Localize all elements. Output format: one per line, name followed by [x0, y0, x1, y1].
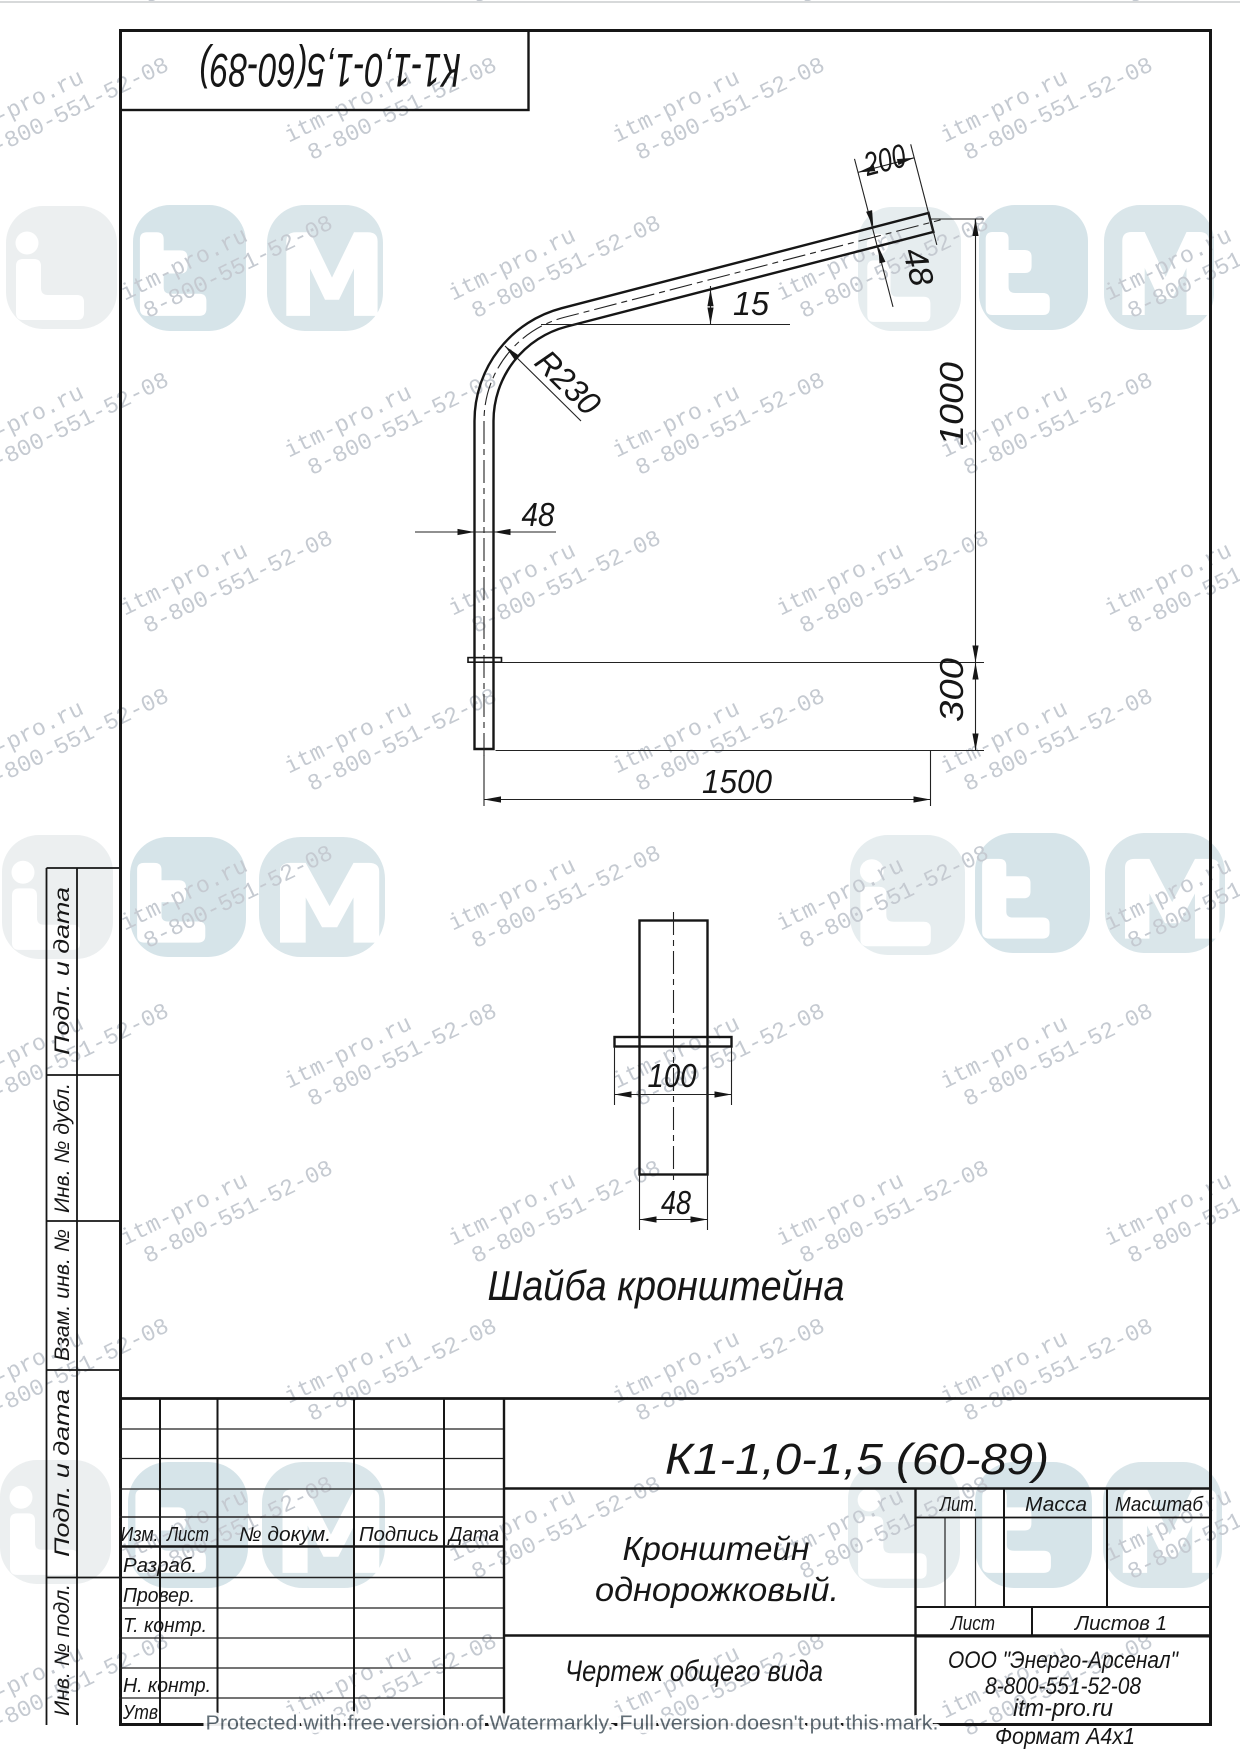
svg-text:200: 200: [859, 136, 910, 183]
svg-text:48: 48: [896, 244, 942, 291]
svg-text:Чертеж общего вида: Чертеж общего вида: [565, 1655, 823, 1688]
svg-text:15: 15: [733, 285, 770, 322]
svg-text:К1-1,0-1,5 (60-89): К1-1,0-1,5 (60-89): [665, 1435, 1049, 1484]
svg-text:300: 300: [933, 657, 970, 722]
svg-text:Подп. и дата: Подп. и дата: [51, 887, 74, 1055]
svg-text:Инв. № подл.: Инв. № подл.: [51, 1584, 74, 1716]
svg-text:48: 48: [522, 496, 556, 533]
svg-text:1000: 1000: [933, 361, 970, 446]
svg-text:Лист: Лист: [165, 1524, 209, 1546]
svg-text:Инв. № дубл.: Инв. № дубл.: [51, 1083, 74, 1213]
svg-text:К1-1,0-1,5(60-89): К1-1,0-1,5(60-89): [199, 44, 461, 97]
svg-text:ООО "Энерго-Арсенал": ООО "Энерго-Арсенал": [948, 1647, 1179, 1674]
svg-text:Взам. инв. №: Взам. инв. №: [51, 1229, 74, 1361]
svg-text:Подпись: Подпись: [359, 1524, 439, 1546]
svg-text:Формат А4х1: Формат А4х1: [995, 1723, 1135, 1749]
svg-text:Изм.: Изм.: [121, 1524, 159, 1546]
svg-text:itm-pro.ru: itm-pro.ru: [1013, 1695, 1113, 1722]
svg-text:R230: R230: [528, 342, 609, 422]
svg-text:Protected with free version of: Protected with free version of Watermark…: [206, 1713, 939, 1735]
svg-text:Лист: Лист: [949, 1613, 995, 1635]
svg-text:Утв.: Утв.: [122, 1702, 163, 1724]
svg-text:Подп. и дата: Подп. и дата: [51, 1389, 74, 1557]
svg-text:Дата: Дата: [447, 1524, 499, 1546]
svg-text:Лит.: Лит.: [938, 1494, 978, 1516]
svg-text:1500: 1500: [702, 763, 773, 800]
svg-text:Шайба кронштейна: Шайба кронштейна: [488, 1262, 845, 1309]
svg-text:Масштаб: Масштаб: [1115, 1494, 1204, 1516]
svg-text:Кронштейн: Кронштейн: [623, 1530, 810, 1567]
svg-text:однорожковый.: однорожковый.: [595, 1571, 839, 1608]
svg-text:Н. контр.: Н. контр.: [123, 1675, 211, 1697]
svg-text:100: 100: [648, 1057, 698, 1094]
svg-text:Разраб.: Разраб.: [123, 1555, 197, 1577]
svg-text:Масса: Масса: [1025, 1494, 1087, 1516]
svg-text:Т. контр.: Т. контр.: [123, 1615, 207, 1637]
svg-text:Листов 1: Листов 1: [1073, 1613, 1167, 1635]
svg-text:48: 48: [661, 1184, 692, 1221]
svg-text:№ докум.: № докум.: [239, 1524, 331, 1546]
svg-text:Провер.: Провер.: [123, 1585, 195, 1607]
